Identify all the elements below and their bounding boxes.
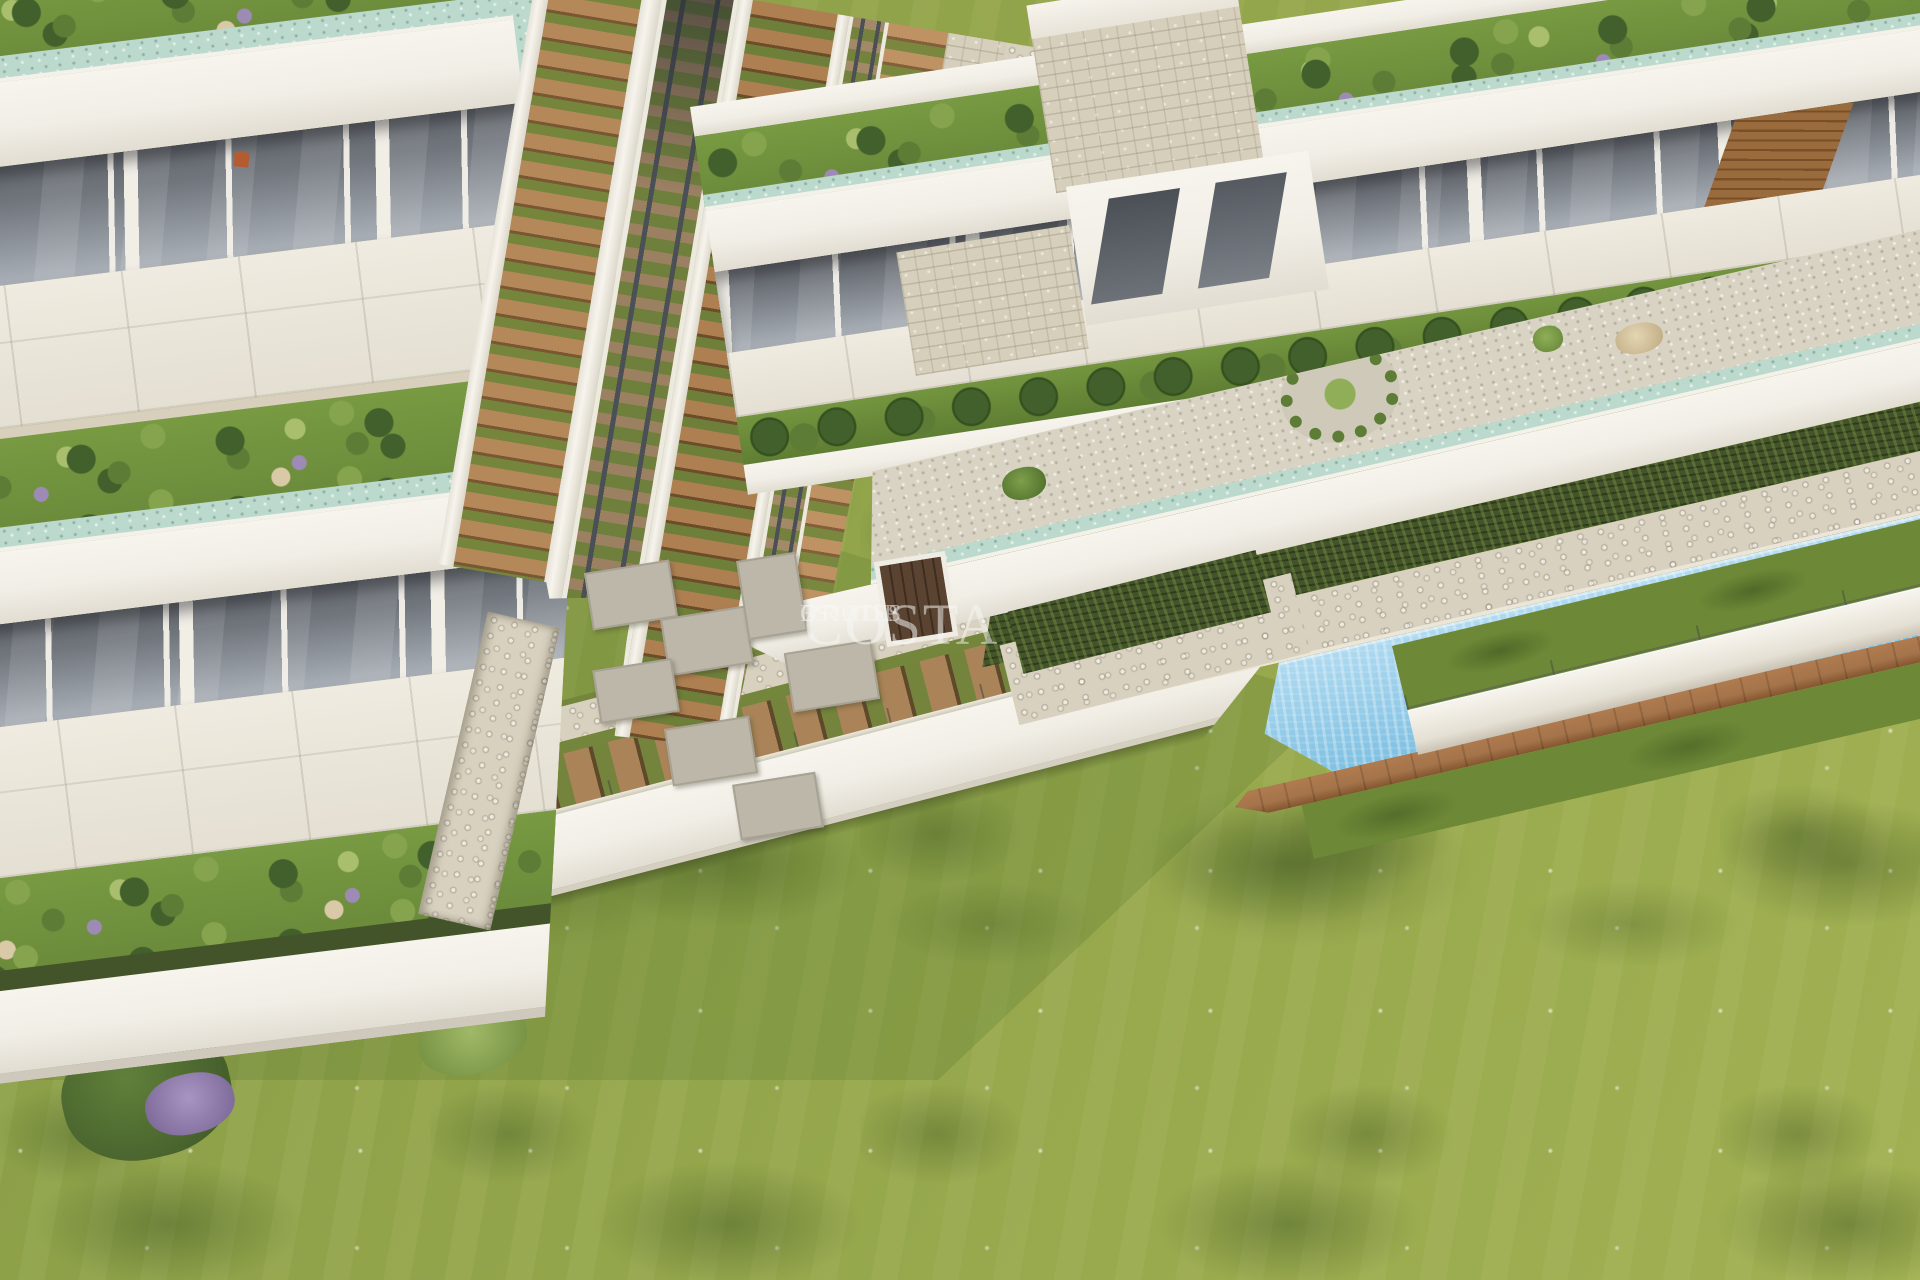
architectural-rendering: COSTA GROUP ESTATES	[0, 0, 1920, 1280]
cactus	[1530, 323, 1565, 355]
shrub	[999, 463, 1049, 504]
concrete-paver	[736, 552, 808, 640]
window-opening	[1198, 172, 1287, 288]
lavender-shrub	[1101, 417, 1140, 452]
window-opening	[1091, 188, 1180, 304]
watermark-estates: ESTATES	[800, 601, 902, 628]
rock	[1612, 318, 1666, 358]
tower-roof-cap	[1026, 0, 1239, 39]
terracotta-sign	[233, 151, 249, 167]
